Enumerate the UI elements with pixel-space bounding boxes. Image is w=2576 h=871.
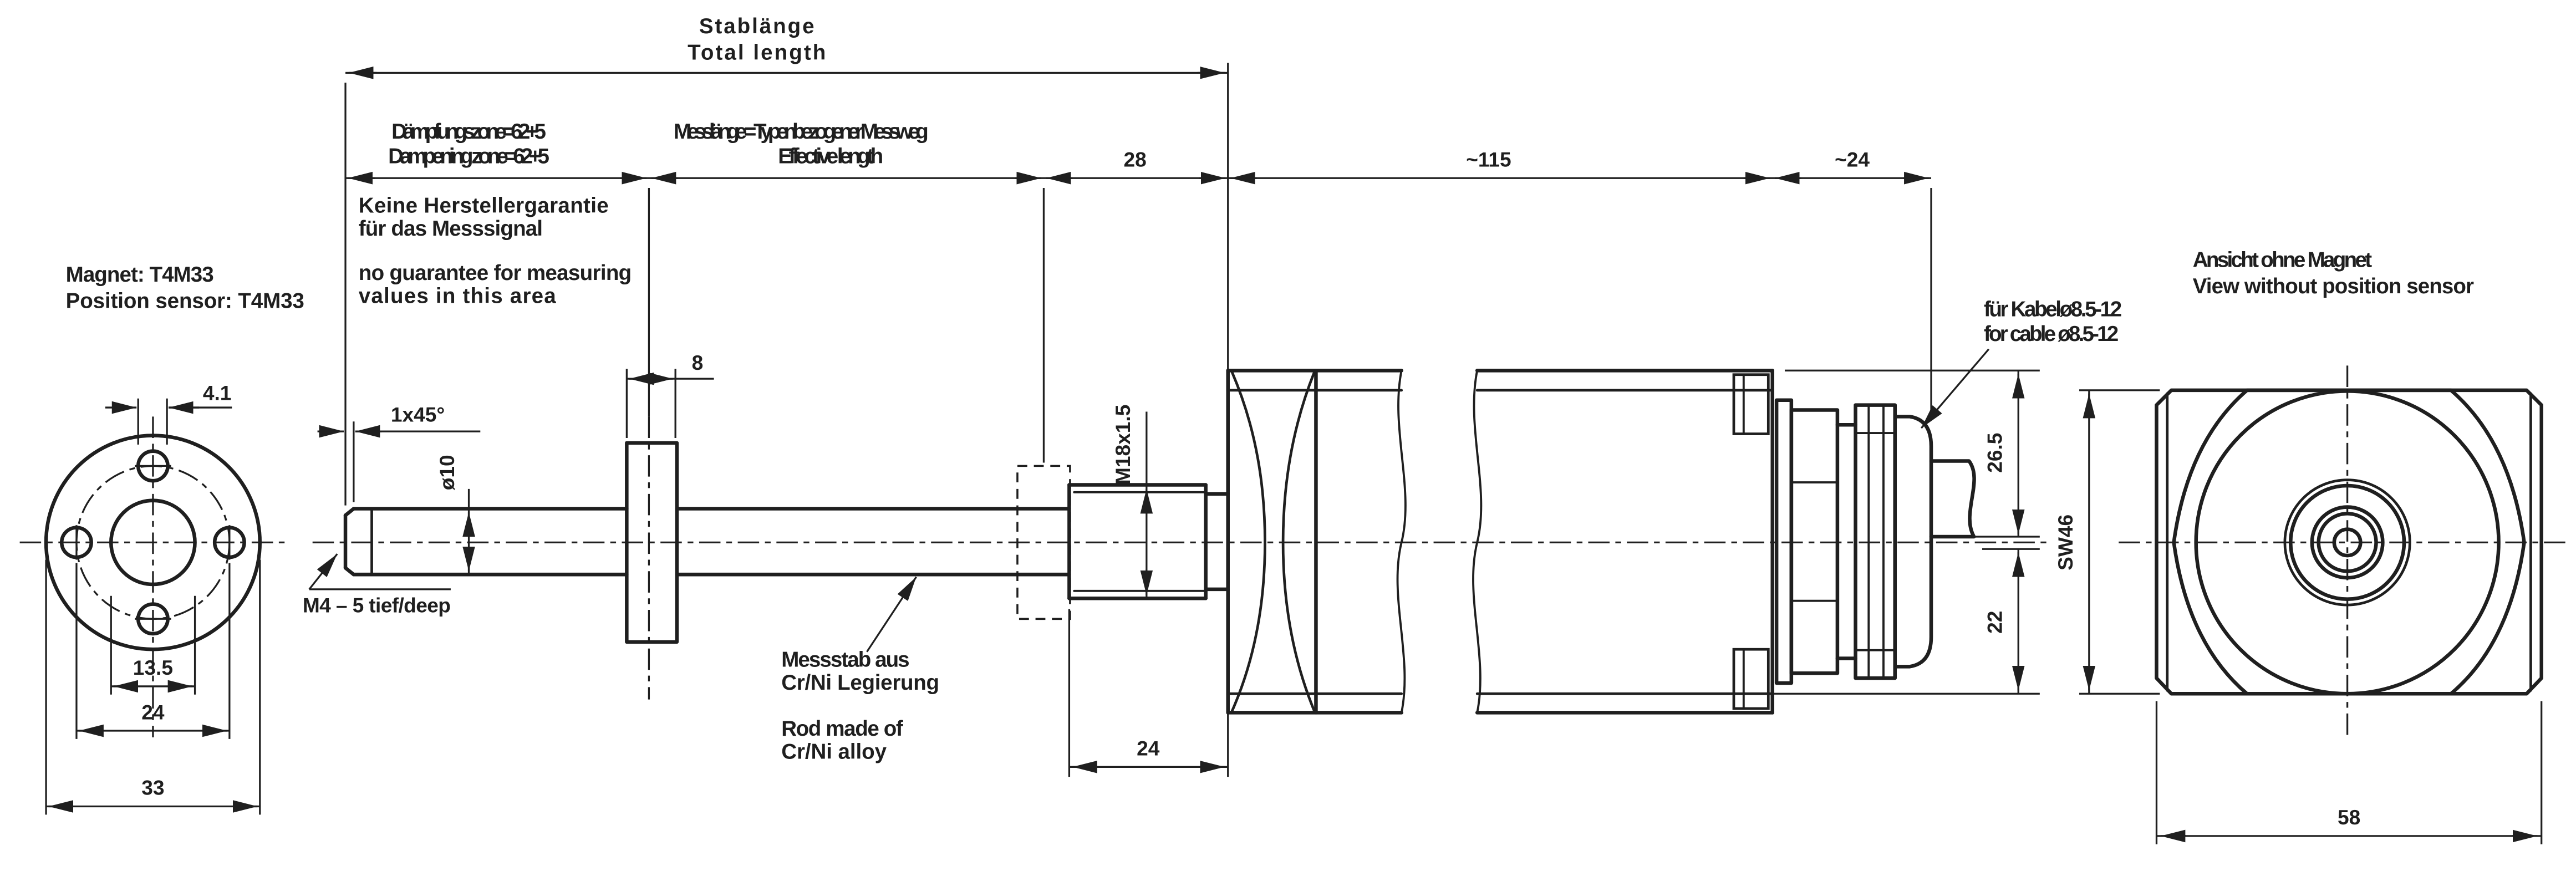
dim-28: 28 <box>1123 147 1146 171</box>
dim-thread-m18: M18x1.5 <box>1111 405 1134 485</box>
dim-115: ~115 <box>1466 147 1511 171</box>
dim-chamfer: 1x45° <box>391 403 445 426</box>
dim-24-magnet: 24 <box>141 700 165 724</box>
label-m4-thread: M4 – 5 tief/deep <box>303 593 451 617</box>
dim-sw46: SW46 <box>2054 515 2077 571</box>
label-cable-de: für Kabelø8.5-12 <box>1984 297 2122 321</box>
dim-26-5: 26.5 <box>1983 433 2007 473</box>
label-messlaenge-de: Messlänge = Typenbezogener Messweg <box>674 120 929 144</box>
note-warranty-4: values in this area <box>359 284 557 308</box>
dim-rod-diameter: ø10 <box>435 455 459 490</box>
label-damping-de: Dämpfungszone=62+5 <box>391 120 546 144</box>
note-rod-material-de-1: Messstab aus <box>781 648 909 671</box>
note-warranty-3: no guarantee for measuring <box>359 261 632 285</box>
dim-58: 58 <box>2338 806 2360 829</box>
dim-8: 8 <box>692 351 704 374</box>
dim-24-thread: 24 <box>1137 737 1160 760</box>
label-stablaenge-en: Total length <box>688 41 826 65</box>
note-warranty-1: Keine Herstellergarantie <box>359 193 609 217</box>
label-cable-en: for cable ø8.5-12 <box>1984 322 2119 346</box>
label-end-view-de: Ansicht ohne Magnet <box>2193 248 2373 272</box>
dim-24-head: ~24 <box>1835 147 1870 171</box>
label-magnet-de: Magnet: T4M33 <box>66 263 214 287</box>
sheet-background <box>0 1 2576 870</box>
note-rod-material-en-1: Rod made of <box>781 717 903 741</box>
label-messlaenge-en: Effective length <box>778 144 883 168</box>
dim-4-1: 4.1 <box>203 381 232 405</box>
dim-13-5: 13.5 <box>133 656 173 679</box>
dim-22: 22 <box>1983 611 2007 634</box>
label-stablaenge-de: Stablänge <box>699 14 814 38</box>
label-end-view-en: View without position sensor <box>2193 274 2474 298</box>
label-damping-en: Dampening zone=62+5 <box>388 144 549 168</box>
note-warranty-2: für das Messsignal <box>359 217 543 241</box>
note-rod-material-en-2: Cr/Ni alloy <box>781 740 887 763</box>
label-magnet-en: Position sensor: T4M33 <box>66 289 304 313</box>
technical-drawing: 4.1 13.5 24 33 Magnet: T4M33 Position se… <box>0 0 2576 871</box>
note-rod-material-de-2: Cr/Ni Legierung <box>781 671 939 695</box>
dim-33: 33 <box>141 776 164 799</box>
